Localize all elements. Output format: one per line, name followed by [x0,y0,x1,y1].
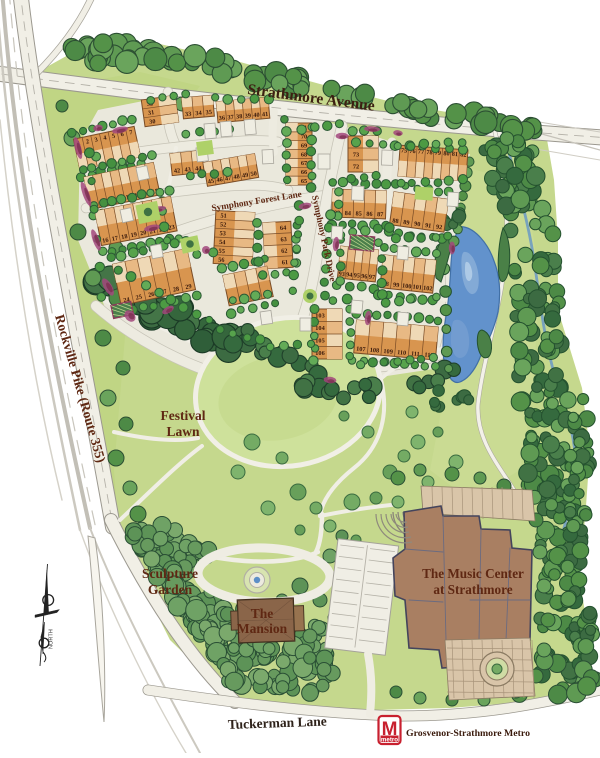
svg-text:104: 104 [315,325,325,332]
svg-text:107: 107 [356,346,366,354]
svg-text:Sculpture: Sculpture [142,566,198,581]
svg-text:108: 108 [369,347,379,355]
svg-text:109: 109 [383,348,393,356]
svg-text:Lawn: Lawn [166,424,200,439]
svg-text:48: 48 [233,173,240,181]
svg-text:40: 40 [253,112,260,120]
svg-text:101: 101 [412,284,422,292]
svg-text:38: 38 [236,113,243,121]
svg-text:33: 33 [185,111,192,119]
svg-text:63: 63 [280,236,287,243]
svg-text:39: 39 [244,112,251,120]
svg-text:Festival: Festival [161,408,206,423]
svg-text:89: 89 [403,219,410,227]
svg-text:90: 90 [414,220,421,228]
svg-text:51: 51 [220,212,227,219]
svg-text:99: 99 [393,282,400,290]
svg-text:69: 69 [301,142,307,149]
svg-text:85: 85 [355,210,362,217]
svg-text:metro: metro [381,736,398,743]
svg-text:81: 81 [451,151,458,158]
svg-text:65: 65 [301,178,307,185]
svg-text:86: 86 [366,211,373,218]
svg-text:Garden: Garden [148,582,193,597]
svg-text:92: 92 [435,224,442,232]
svg-text:56: 56 [218,257,225,264]
svg-text:42: 42 [174,167,181,175]
svg-text:62: 62 [281,248,288,255]
svg-text:96: 96 [361,273,368,281]
svg-text:53: 53 [219,230,226,237]
svg-text:67: 67 [301,160,307,167]
svg-text:Mansion: Mansion [237,621,288,636]
svg-text:19: 19 [130,231,138,239]
svg-text:17: 17 [111,235,119,243]
svg-text:50: 50 [250,170,257,178]
svg-text:61: 61 [282,259,289,266]
svg-text:49: 49 [241,172,248,180]
svg-text:35: 35 [205,109,212,117]
svg-text:87: 87 [377,211,384,218]
svg-text:66: 66 [301,169,307,176]
svg-text:30: 30 [149,118,156,126]
svg-text:31: 31 [148,109,155,117]
svg-text:36: 36 [219,115,226,123]
svg-text:18: 18 [121,233,129,241]
svg-text:55: 55 [218,248,225,255]
svg-text:at Strathmore: at Strathmore [433,582,512,597]
svg-text:72: 72 [353,163,359,170]
svg-text:The: The [251,606,274,621]
svg-text:45: 45 [207,178,214,186]
svg-text:91: 91 [425,222,432,230]
svg-text:Grosvenor-Strathmore Metro: Grosvenor-Strathmore Metro [406,728,530,739]
svg-text:100: 100 [402,282,412,290]
svg-text:102: 102 [423,285,433,293]
svg-text:110: 110 [397,349,407,357]
svg-text:84: 84 [345,210,352,217]
svg-text:95: 95 [353,272,360,280]
svg-text:37: 37 [227,114,234,122]
svg-text:73: 73 [353,151,359,158]
svg-text:The Music Center: The Music Center [422,566,524,581]
svg-text:97: 97 [368,274,375,282]
svg-text:41: 41 [262,111,269,119]
svg-text:52: 52 [220,221,227,228]
svg-text:16: 16 [102,237,110,245]
svg-text:NORTH: NORTH [49,629,55,649]
